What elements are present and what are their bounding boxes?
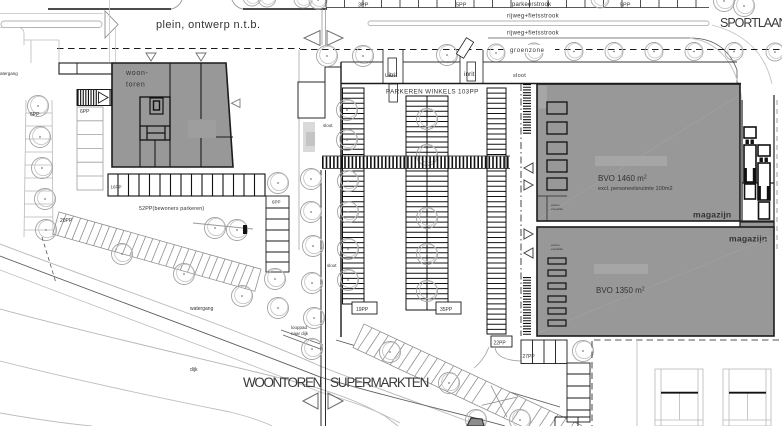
svg-text:uitrit: uitrit [385, 72, 397, 79]
svg-text:inrit: inrit [464, 71, 475, 78]
svg-text:5PP: 5PP [620, 3, 631, 9]
svg-text:sloot: sloot [327, 263, 337, 268]
svg-text:SPORTLAAN: SPORTLAAN [720, 16, 782, 30]
svg-text:5PP: 5PP [456, 3, 467, 9]
svg-text:sloot: sloot [513, 73, 526, 79]
svg-text:6PP: 6PP [272, 200, 281, 205]
svg-text:expeditie: expeditie [551, 247, 563, 251]
svg-text:27PP: 27PP [523, 354, 536, 360]
svg-text:20PP: 20PP [60, 218, 73, 224]
svg-text:magazijn: magazijn [729, 234, 767, 244]
svg-text:BVO 1460 m2: BVO 1460 m2 [598, 174, 647, 183]
svg-text:19PP: 19PP [356, 307, 369, 313]
svg-text:35PP: 35PP [440, 307, 453, 313]
svg-text:atergang: atergang [0, 71, 18, 76]
svg-text:PARKEREN WINKELS 103PP: PARKEREN WINKELS 103PP [386, 89, 479, 96]
svg-text:sloot: sloot [323, 123, 333, 128]
svg-text:3PP: 3PP [358, 3, 369, 9]
svg-text:16PP: 16PP [111, 185, 122, 190]
svg-text:SUPERMARKTEN: SUPERMARKTEN [330, 375, 429, 390]
svg-text:52PP(bewoners parkeren): 52PP(bewoners parkeren) [139, 206, 204, 212]
svg-text:excl. personeelsruimte 100m2: excl. personeelsruimte 100m2 [598, 186, 673, 192]
svg-text:magazijn: magazijn [693, 210, 731, 220]
svg-text:rijweg+fietsstrook: rijweg+fietsstrook [507, 31, 560, 37]
svg-text:dijk: dijk [190, 367, 198, 373]
svg-text:toren: toren [126, 82, 145, 89]
svg-text:looppad: looppad [291, 325, 308, 330]
svg-text:22PP: 22PP [494, 341, 507, 347]
svg-text:naar dijk: naar dijk [291, 331, 309, 336]
svg-text:watergang: watergang [190, 306, 214, 312]
svg-text:6PP: 6PP [80, 109, 90, 115]
svg-text:6PP: 6PP [30, 112, 40, 118]
svg-text:groenzone: groenzone [510, 48, 545, 54]
svg-text:rijweg+fietsstrook: rijweg+fietsstrook [507, 14, 560, 20]
svg-text:plein, ontwerp n.t.b.: plein, ontwerp n.t.b. [156, 19, 260, 31]
svg-text:expeditie: expeditie [551, 207, 563, 211]
svg-text:BVO 1350 m2: BVO 1350 m2 [596, 286, 645, 295]
svg-text:parkeerstrook: parkeerstrook [512, 2, 552, 8]
svg-text:woon-: woon- [125, 70, 149, 77]
svg-text:WOONTOREN: WOONTOREN [243, 375, 322, 390]
